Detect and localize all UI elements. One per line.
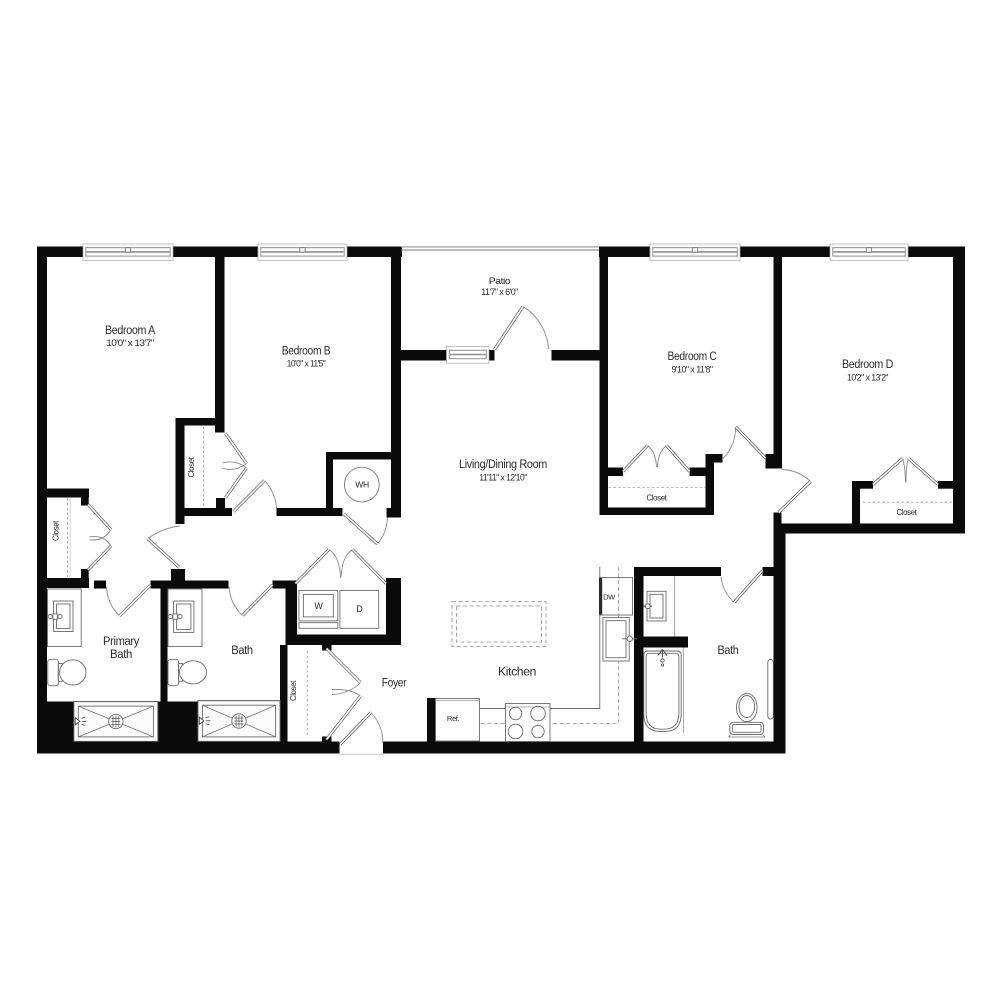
svg-text:Bath: Bath [718, 645, 739, 657]
svg-text:Closet: Closet [186, 457, 196, 478]
svg-text:11'7" x 6'0": 11'7" x 6'0" [481, 287, 518, 297]
svg-text:Bedroom B: Bedroom B [282, 346, 331, 358]
svg-text:Closet: Closet [51, 520, 61, 541]
svg-text:Bedroom C: Bedroom C [668, 351, 717, 363]
svg-text:Primary: Primary [103, 636, 140, 648]
svg-text:Kitchen: Kitchen [498, 667, 536, 679]
svg-text:Patio: Patio [489, 276, 511, 287]
svg-text:Foyer: Foyer [382, 678, 407, 690]
svg-text:Bath: Bath [110, 649, 132, 661]
svg-text:D: D [356, 604, 363, 614]
svg-text:9'10" x 11'8": 9'10" x 11'8" [672, 365, 713, 375]
svg-text:Living/Dining Room: Living/Dining Room [459, 459, 547, 471]
svg-text:11'11" x 12'10": 11'11" x 12'10" [479, 473, 527, 483]
svg-text:10'0" x 13'7": 10'0" x 13'7" [106, 338, 154, 348]
svg-text:Closet: Closet [647, 493, 668, 503]
svg-text:10'0" x 11'5": 10'0" x 11'5" [287, 359, 326, 369]
svg-text:Bedroom A: Bedroom A [105, 325, 156, 337]
svg-text:Bath: Bath [231, 645, 253, 657]
svg-text:Bedroom D: Bedroom D [842, 359, 893, 371]
svg-text:W: W [314, 601, 323, 611]
svg-text:DW: DW [603, 593, 616, 602]
svg-text:10'2" x 13'2": 10'2" x 13'2" [847, 373, 888, 383]
svg-text:Closet: Closet [897, 507, 918, 517]
svg-text:Ref.: Ref. [447, 714, 459, 723]
svg-text:Closet: Closet [288, 680, 298, 701]
svg-text:WH: WH [355, 480, 369, 490]
